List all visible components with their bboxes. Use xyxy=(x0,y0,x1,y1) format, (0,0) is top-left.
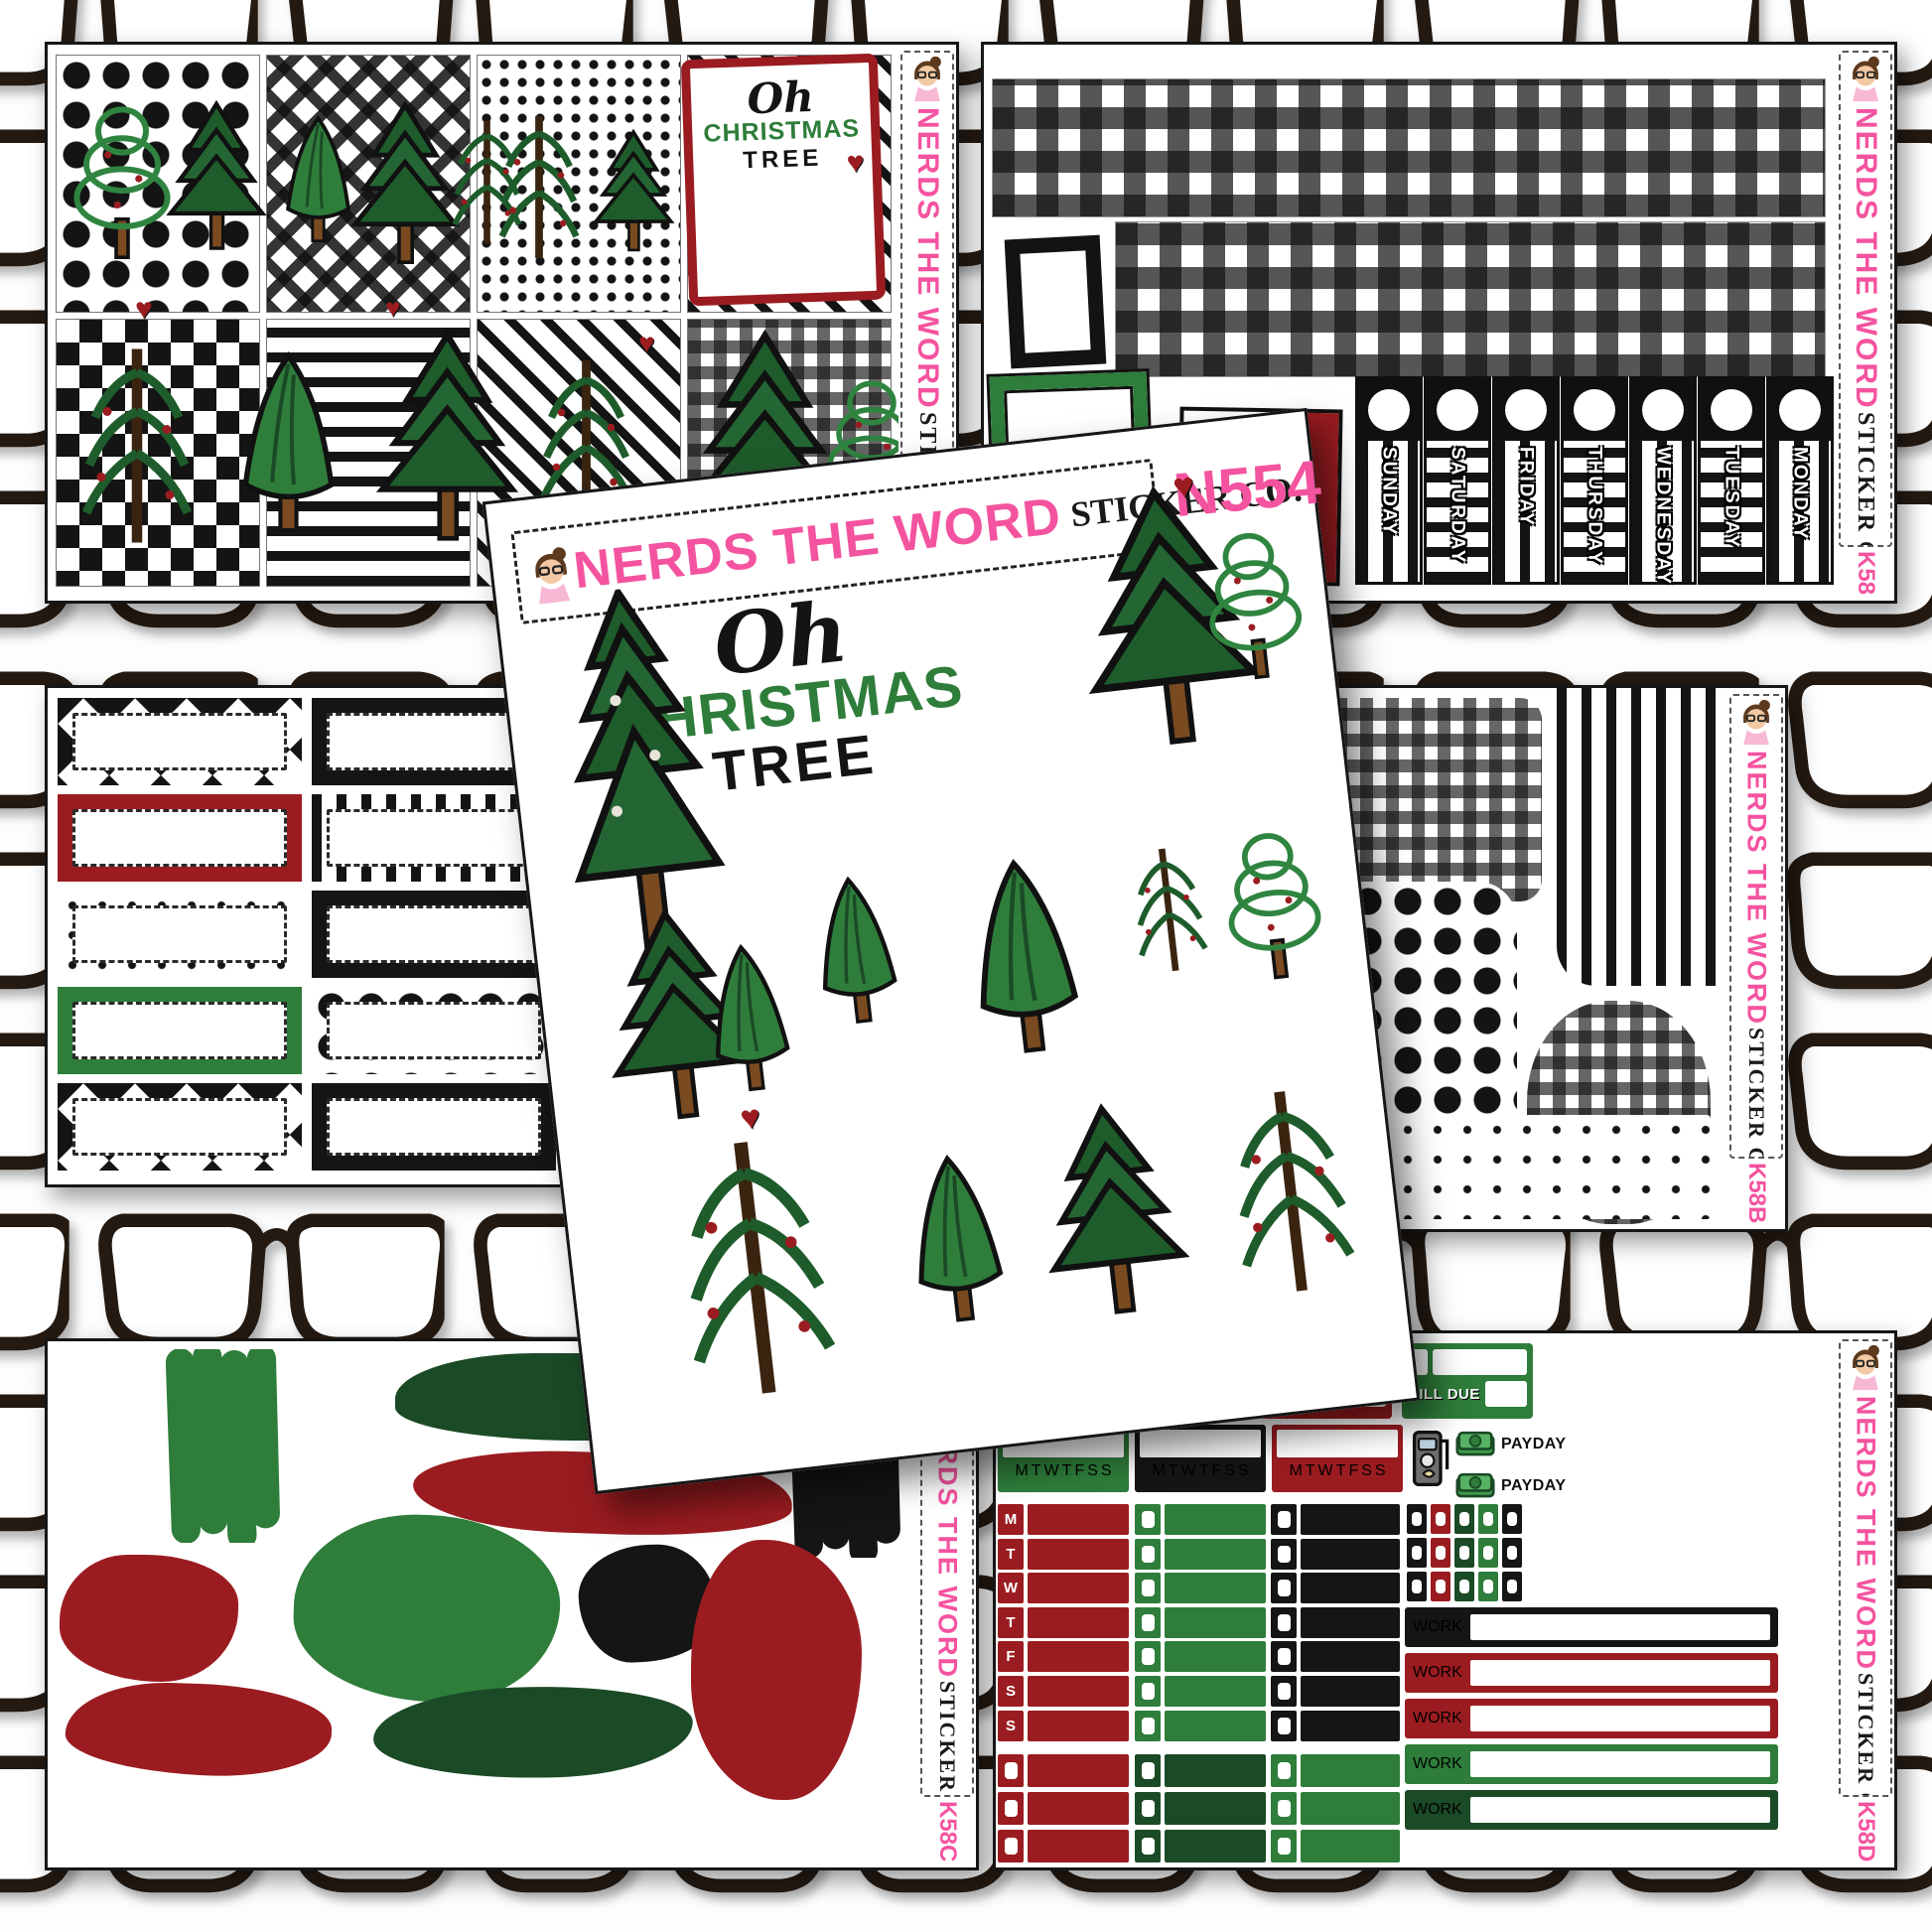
checkbox xyxy=(1412,1512,1422,1526)
brand-suffix: STICKER CO. xyxy=(1855,1673,1876,1797)
mini-checkbox-sticker xyxy=(1407,1538,1427,1568)
half-box-sticker xyxy=(312,1083,556,1171)
glasses-icon xyxy=(473,1918,820,1932)
week-row-sticker xyxy=(1135,1641,1266,1672)
checkbox xyxy=(1005,1800,1018,1817)
glasses-icon xyxy=(1223,1918,1571,1932)
checklist-row-bar xyxy=(1028,1830,1129,1863)
nerd-girl-avatar-icon xyxy=(1736,699,1776,747)
checklist-checkbox-cell xyxy=(1271,1754,1297,1787)
day-letter: F xyxy=(1074,1462,1084,1480)
week-row-bar xyxy=(1165,1676,1266,1707)
half-box-writing-area xyxy=(327,1002,541,1059)
brand-suffix: STICKER CO. xyxy=(936,1681,958,1797)
work-label: WORK xyxy=(1413,1801,1462,1819)
checklist-row-sticker xyxy=(998,1830,1129,1863)
half-box-sticker xyxy=(58,987,302,1074)
checkbox xyxy=(1005,1762,1018,1779)
checkbox xyxy=(1278,1800,1291,1817)
checklist-row-bar xyxy=(1301,1830,1400,1863)
swatch-marker-strokes-vertical xyxy=(77,1349,360,1543)
half-box-writing-area xyxy=(72,713,287,770)
checkbox xyxy=(1436,1546,1446,1560)
tree-pine-sticker xyxy=(589,99,678,283)
week-row-bar xyxy=(1301,1607,1400,1638)
week-row-bar xyxy=(1165,1573,1266,1603)
day-letter: M xyxy=(1289,1462,1302,1480)
week-checkbox-cell xyxy=(1271,1573,1297,1603)
brand-name: NERDS THE WORD xyxy=(912,107,942,410)
checkbox xyxy=(1142,1762,1155,1779)
money-stack-icon xyxy=(1455,1472,1495,1500)
checklist-checkbox-cell xyxy=(1135,1830,1161,1863)
tree-cone-sticker xyxy=(792,857,920,1041)
mini-checkbox-sticker xyxy=(1454,1538,1474,1568)
day-cover-top xyxy=(1427,379,1488,441)
day-cover-top xyxy=(1358,379,1420,441)
checklist-row-sticker xyxy=(998,1792,1129,1825)
week-row-bar xyxy=(1301,1676,1400,1707)
checkbox xyxy=(1142,1800,1155,1817)
checklist-row-sticker xyxy=(1135,1754,1266,1787)
work-writein-box xyxy=(1470,1751,1770,1777)
gas-pump-icon xyxy=(1408,1423,1451,1494)
checkbox xyxy=(1459,1580,1469,1593)
tree-cone-sticker xyxy=(939,831,1109,1079)
glasses-icon xyxy=(1787,1015,1932,1178)
tree-droop-sticker xyxy=(1194,1011,1386,1368)
week-row-sticker xyxy=(1271,1573,1400,1603)
week-row-bar xyxy=(1301,1504,1400,1535)
work-writein-box xyxy=(1470,1660,1770,1686)
week-checkbox-cell xyxy=(1135,1711,1161,1741)
work-writein-box xyxy=(1470,1797,1770,1823)
work-label-sticker: WORK xyxy=(1405,1699,1778,1738)
mini-checkbox-sticker xyxy=(1478,1504,1498,1534)
week-row-sticker xyxy=(1135,1539,1266,1570)
checklist-row-sticker xyxy=(1271,1792,1400,1825)
mini-checkbox-sticker xyxy=(1502,1504,1522,1534)
bill-due-amount-box xyxy=(1485,1381,1527,1407)
week-checkbox-cell xyxy=(1135,1607,1161,1638)
day-letter: S xyxy=(1101,1462,1112,1480)
glasses-icon xyxy=(1598,1918,1932,1932)
checklist-row-sticker xyxy=(1135,1830,1266,1863)
week-row-sticker: T xyxy=(998,1539,1129,1570)
tree-pine-sticker xyxy=(1020,1055,1205,1364)
work-label-sticker: WORK xyxy=(1405,1653,1778,1693)
day-circle xyxy=(1505,389,1547,431)
week-row-sticker: S xyxy=(998,1676,1129,1707)
week-row-bar xyxy=(1028,1573,1129,1603)
week-row-sticker: S xyxy=(998,1711,1129,1741)
sheet-code: K58 xyxy=(1852,551,1879,595)
work-label: WORK xyxy=(1413,1664,1462,1682)
checkbox xyxy=(1436,1580,1446,1593)
mini-checkbox-sticker xyxy=(1431,1504,1450,1534)
week-row-bar xyxy=(1165,1711,1266,1741)
checkbox xyxy=(1142,1614,1155,1631)
brand-name: NERDS THE WORD xyxy=(1853,1396,1879,1671)
pattern-swatch-sticker xyxy=(1557,688,1716,986)
day-circle xyxy=(1437,389,1478,431)
brand-suffix: STICKER CO. xyxy=(1745,1028,1767,1159)
week-row-bar xyxy=(1301,1711,1400,1741)
day-letter: S xyxy=(1238,1462,1249,1480)
half-box-writing-area xyxy=(72,905,287,963)
checklist-checkbox-cell xyxy=(998,1830,1024,1863)
checklist-checkbox-cell xyxy=(1135,1754,1161,1787)
tree-cone-sticker xyxy=(221,323,355,561)
nerd-girl-avatar-icon xyxy=(1846,56,1885,103)
habit-writein-box xyxy=(1277,1430,1398,1457)
week-row-bar xyxy=(1165,1504,1266,1535)
payday-sticker: PAYDAY xyxy=(1455,1431,1567,1458)
checkbox xyxy=(1142,1838,1155,1855)
checkbox xyxy=(1142,1546,1155,1563)
week-row-sticker xyxy=(1135,1676,1266,1707)
day-letter: T xyxy=(1062,1462,1072,1480)
brand-name: NERDS THE WORD xyxy=(1851,107,1880,410)
half-box-sticker xyxy=(312,987,556,1074)
checkbox xyxy=(1412,1546,1422,1560)
day-letter: T xyxy=(1306,1462,1315,1480)
day-letter: T xyxy=(1336,1462,1346,1480)
day-cover-sticker: THURSDAY xyxy=(1561,376,1628,585)
checkbox xyxy=(1483,1512,1493,1526)
heart-icon: ♥ xyxy=(846,146,865,181)
swatch-marker-scribble xyxy=(60,1555,238,1682)
day-letter: S xyxy=(1087,1462,1098,1480)
corner-title-oh: Oh xyxy=(691,76,871,120)
day-circle xyxy=(1779,389,1821,431)
payday-sticker: PAYDAY xyxy=(1455,1472,1567,1500)
checklist-row-sticker xyxy=(1135,1792,1266,1825)
checkbox xyxy=(1507,1546,1517,1560)
work-label: WORK xyxy=(1413,1618,1462,1636)
payday-label: PAYDAY xyxy=(1501,1436,1567,1453)
checklist-checkbox-cell xyxy=(998,1792,1024,1825)
week-row-sticker xyxy=(1271,1641,1400,1672)
week-day-letter-cell: M xyxy=(998,1504,1024,1535)
week-row-sticker xyxy=(1271,1607,1400,1638)
heart-icon: ♥ xyxy=(135,293,153,327)
sheet-code: K58B xyxy=(1742,1163,1770,1223)
day-letter: M xyxy=(1152,1462,1165,1480)
checklist-row-bar xyxy=(1028,1754,1129,1787)
mini-checkbox-sticker xyxy=(1431,1572,1450,1601)
tree-cone-sticker xyxy=(684,917,814,1117)
buffalo-plaid-washi-strip-2 xyxy=(1115,221,1826,377)
habit-day-letters: MTWTFSS xyxy=(1277,1462,1398,1480)
work-label: WORK xyxy=(1413,1755,1462,1773)
heart-icon: ♥ xyxy=(638,328,655,359)
sheet-sidebar: NERDS THE WORD STICKER CO. K58B xyxy=(1727,688,1785,1229)
day-letter: S xyxy=(1361,1462,1372,1480)
product-collage: ♥♥♥ Oh CHRISTMAS TREE ♥ NERDS THE WORD S… xyxy=(0,0,1932,1932)
tree-scribble-sticker xyxy=(1204,794,1340,1010)
week-row-bar xyxy=(1165,1641,1266,1672)
habit-writein-box xyxy=(1140,1430,1261,1457)
day-name-label: SATURDAY xyxy=(1449,447,1467,564)
week-checkbox-cell xyxy=(1271,1607,1297,1638)
habit-tracker-header-sticker: MTWTFSS xyxy=(1272,1425,1403,1492)
work-writein-box xyxy=(1470,1614,1770,1640)
bill-due-row: BILL DUE xyxy=(1408,1381,1527,1407)
nerd-girl-avatar-icon xyxy=(1846,1344,1885,1392)
black-sketch-frame-sticker xyxy=(1005,235,1107,369)
day-cover-top xyxy=(1701,379,1762,441)
week-row-sticker: M xyxy=(998,1504,1129,1535)
work-label: WORK xyxy=(1413,1710,1462,1727)
mini-checkbox-sticker xyxy=(1502,1572,1522,1601)
checkbox xyxy=(1278,1683,1291,1700)
week-checkbox-cell xyxy=(1135,1573,1161,1603)
work-label-sticker: WORK xyxy=(1405,1790,1778,1830)
week-row-sticker xyxy=(1135,1504,1266,1535)
heart-icon: ♥ xyxy=(739,1098,762,1139)
checkbox xyxy=(1278,1546,1291,1563)
week-row-bar xyxy=(1165,1539,1266,1570)
checklist-checkbox-cell xyxy=(1271,1792,1297,1825)
bill-due-sticker: BILL DUE xyxy=(1402,1343,1533,1419)
week-row-sticker xyxy=(1135,1573,1266,1603)
week-checkbox-cell xyxy=(1135,1641,1161,1672)
checkbox xyxy=(1459,1546,1469,1560)
day-cover-top xyxy=(1632,379,1694,441)
half-box-sticker xyxy=(312,891,556,978)
week-row-bar xyxy=(1028,1607,1129,1638)
swatch-marker-blob-large xyxy=(691,1540,862,1800)
week-row-sticker: W xyxy=(998,1573,1129,1603)
work-writein-box xyxy=(1470,1706,1770,1731)
week-row-bar xyxy=(1301,1641,1400,1672)
habit-day-letters: MTWTFSS xyxy=(1140,1462,1261,1480)
checkbox xyxy=(1483,1580,1493,1593)
sheet-sidebar: NERDS THE WORD STICKER CO. K58D xyxy=(1837,1333,1894,1867)
checklist-row-bar xyxy=(1028,1792,1129,1825)
bill-due-row xyxy=(1408,1349,1527,1375)
checklist-row-sticker xyxy=(998,1754,1129,1787)
day-letter: W xyxy=(1318,1462,1333,1480)
checklist-row-bar xyxy=(1301,1754,1400,1787)
day-letter: T xyxy=(1199,1462,1209,1480)
day-cover-top xyxy=(1769,379,1831,441)
week-checkbox-cell xyxy=(1135,1504,1161,1535)
week-row-bar xyxy=(1028,1504,1129,1535)
sheet-code: K58D xyxy=(1852,1801,1879,1862)
day-name-label: FRIDAY xyxy=(1517,447,1536,527)
day-name-label: WEDNESDAY xyxy=(1654,447,1673,586)
glasses-icon xyxy=(1787,653,1932,817)
half-box-writing-area xyxy=(72,1002,287,1059)
heart-icon: ♥ xyxy=(1171,464,1196,507)
half-box-writing-area xyxy=(72,1098,287,1156)
day-letter: W xyxy=(1044,1462,1059,1480)
checkbox xyxy=(1278,1718,1291,1734)
half-box-writing-area xyxy=(327,809,541,867)
checkbox xyxy=(1459,1512,1469,1526)
day-circle xyxy=(1711,389,1752,431)
week-checkbox-cell xyxy=(1271,1676,1297,1707)
week-row-bar xyxy=(1028,1641,1129,1672)
checkbox xyxy=(1278,1614,1291,1631)
checklist-row-bar xyxy=(1165,1830,1266,1863)
week-day-letter-cell: T xyxy=(998,1607,1024,1638)
half-box-sticker xyxy=(58,794,302,882)
day-cover-sticker: FRIDAY xyxy=(1492,376,1560,585)
day-cover-top xyxy=(1495,379,1557,441)
brand-suffix: STICKER CO. xyxy=(1854,412,1877,547)
checkbox xyxy=(1483,1546,1493,1560)
day-letter: F xyxy=(1211,1462,1221,1480)
nerd-girl-avatar-icon xyxy=(907,56,947,103)
day-cover-sticker: SATURDAY xyxy=(1424,376,1491,585)
oh-christmas-tree-corner-sticker: Oh CHRISTMAS TREE ♥ xyxy=(681,54,887,307)
sheet-center-n554: NERDS THE WORD STICKER CO. N554 Oh CHRIS… xyxy=(483,408,1421,1494)
week-row-bar xyxy=(1301,1539,1400,1570)
money-stack-icon xyxy=(1455,1431,1495,1458)
mini-checkbox-sticker xyxy=(1431,1538,1450,1568)
glasses-icon xyxy=(0,1918,69,1932)
bill-due-writein-box xyxy=(1433,1349,1527,1375)
week-row-bar xyxy=(1301,1573,1400,1603)
day-letter: T xyxy=(1032,1462,1041,1480)
day-circle xyxy=(1642,389,1684,431)
week-checkbox-cell xyxy=(1271,1539,1297,1570)
checklist-checkbox-cell xyxy=(1135,1792,1161,1825)
work-label-sticker: WORK xyxy=(1405,1744,1778,1784)
day-letter: M xyxy=(1015,1462,1028,1480)
day-name-label: THURSDAY xyxy=(1586,447,1604,566)
checkbox xyxy=(1278,1762,1291,1779)
checkbox xyxy=(1142,1580,1155,1596)
week-row-sticker: F xyxy=(998,1641,1129,1672)
mini-checkbox-sticker xyxy=(1478,1572,1498,1601)
tree-droop-sticker xyxy=(63,328,211,561)
half-box-writing-area xyxy=(327,1098,541,1156)
checkbox xyxy=(1278,1580,1291,1596)
checkbox xyxy=(1142,1718,1155,1734)
sheet-code: K58C xyxy=(933,1801,961,1862)
week-day-letter-cell: S xyxy=(998,1711,1024,1741)
checkbox xyxy=(1142,1683,1155,1700)
glasses-icon xyxy=(97,1195,445,1359)
half-box-writing-area xyxy=(72,809,287,867)
mini-checkbox-sticker xyxy=(1454,1504,1474,1534)
day-cover-sticker: SUNDAY xyxy=(1355,376,1423,585)
week-checkbox-cell xyxy=(1271,1711,1297,1741)
week-row-sticker: T xyxy=(998,1607,1129,1638)
week-checkbox-cell xyxy=(1135,1676,1161,1707)
week-row-sticker xyxy=(1271,1539,1400,1570)
checkbox xyxy=(1507,1580,1517,1593)
checkbox xyxy=(1005,1838,1018,1855)
day-cover-sticker: MONDAY xyxy=(1766,376,1834,585)
week-day-letter-cell: W xyxy=(998,1573,1024,1603)
checkbox xyxy=(1278,1838,1291,1855)
week-row-bar xyxy=(1028,1676,1129,1707)
mini-checkbox-sticker xyxy=(1454,1572,1474,1601)
checkbox xyxy=(1507,1512,1517,1526)
week-checkbox-cell xyxy=(1135,1539,1161,1570)
mini-checkbox-sticker xyxy=(1478,1538,1498,1568)
week-row-sticker xyxy=(1271,1504,1400,1535)
week-row-sticker xyxy=(1135,1711,1266,1741)
day-letter: S xyxy=(1224,1462,1235,1480)
checkbox xyxy=(1412,1580,1422,1593)
checklist-row-bar xyxy=(1165,1792,1266,1825)
day-name-label: TUESDAY xyxy=(1723,447,1741,549)
week-row-sticker xyxy=(1271,1676,1400,1707)
tree-droop-sticker xyxy=(484,74,594,298)
mini-checkbox-sticker xyxy=(1502,1538,1522,1568)
mini-checkbox-sticker xyxy=(1407,1572,1427,1601)
checklist-row-sticker xyxy=(1271,1830,1400,1863)
day-cover-sticker: WEDNESDAY xyxy=(1629,376,1697,585)
checkbox xyxy=(1278,1648,1291,1665)
week-row-bar xyxy=(1165,1607,1266,1638)
sheet-sidebar: NERDS THE WORD STICKER CO. K58 xyxy=(1837,45,1894,601)
habit-tracker-header-sticker: MTWTFSS xyxy=(1135,1425,1266,1492)
week-day-letter-cell: T xyxy=(998,1539,1024,1570)
half-box-writing-area xyxy=(327,905,541,963)
day-letter: F xyxy=(1348,1462,1358,1480)
work-label-sticker: WORK xyxy=(1405,1607,1778,1647)
checklist-checkbox-cell xyxy=(998,1754,1024,1787)
checklist-row-sticker xyxy=(1271,1754,1400,1787)
habit-day-letters: MTWTFSS xyxy=(1003,1462,1124,1480)
swatch-marker-swatch xyxy=(64,1679,333,1779)
tree-droop-sticker xyxy=(640,1099,868,1432)
checkbox xyxy=(1436,1512,1446,1526)
week-row-sticker xyxy=(1271,1711,1400,1741)
buffalo-plaid-washi-strip xyxy=(992,78,1826,217)
tree-cone-sticker xyxy=(884,1130,1030,1346)
heart-icon: ♥ xyxy=(385,293,400,324)
checkbox xyxy=(1278,1511,1291,1528)
glasses-icon xyxy=(97,1918,445,1932)
day-letter: W xyxy=(1181,1462,1196,1480)
day-letter: S xyxy=(1375,1462,1386,1480)
checklist-row-bar xyxy=(1301,1792,1400,1825)
day-circle xyxy=(1368,389,1410,431)
week-row-bar xyxy=(1028,1539,1129,1570)
week-checkbox-cell xyxy=(1271,1504,1297,1535)
brand-name: NERDS THE WORD xyxy=(1743,751,1770,1026)
glasses-icon xyxy=(848,1918,1195,1932)
glasses-icon xyxy=(0,1195,69,1359)
checklist-checkbox-cell xyxy=(1271,1830,1297,1863)
tree-pine-sticker xyxy=(162,69,271,283)
week-checkbox-cell xyxy=(1271,1641,1297,1672)
checkbox xyxy=(1142,1511,1155,1528)
week-row-bar xyxy=(1028,1711,1129,1741)
day-name-label: SUNDAY xyxy=(1380,447,1399,537)
day-name-label: MONDAY xyxy=(1791,447,1810,541)
day-letter: T xyxy=(1169,1462,1178,1480)
mini-checkbox-sticker xyxy=(1407,1504,1427,1534)
payday-label: PAYDAY xyxy=(1501,1477,1567,1495)
half-box-sticker xyxy=(58,1083,302,1171)
checkbox xyxy=(1142,1648,1155,1665)
half-box-sticker xyxy=(58,698,302,785)
checklist-row-bar xyxy=(1165,1754,1266,1787)
day-cover-top xyxy=(1564,379,1625,441)
week-day-letter-cell: F xyxy=(998,1641,1024,1672)
half-box-sticker xyxy=(58,891,302,978)
swatch-marker-blob xyxy=(291,1510,563,1706)
